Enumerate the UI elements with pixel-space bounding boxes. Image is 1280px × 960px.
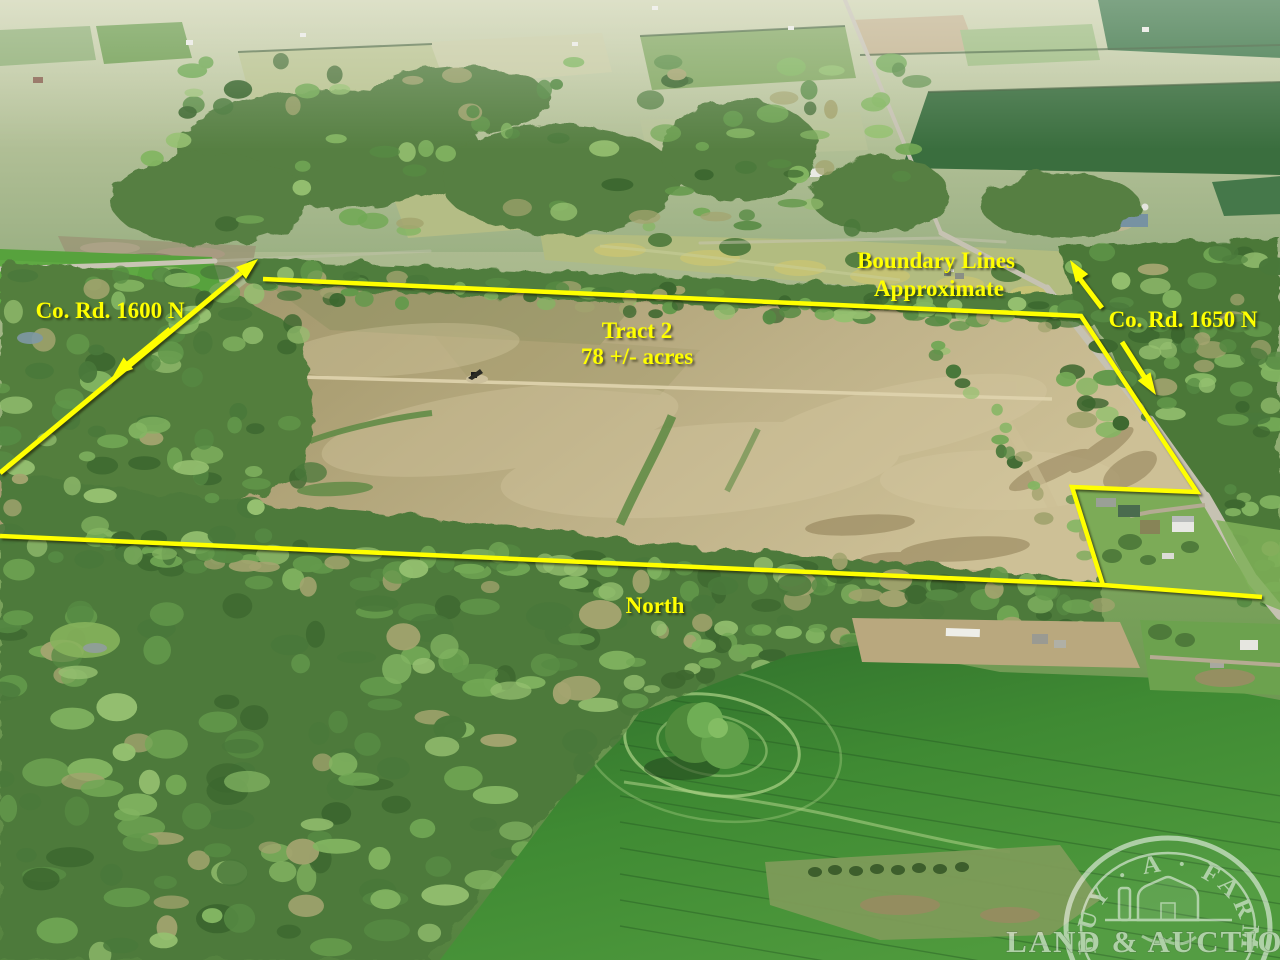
road-label-right: Co. Rd. 1650 N	[1109, 307, 1258, 332]
road-label-left: Co. Rd. 1600 N	[36, 298, 185, 323]
tract-label-line2: 78 +/- acres	[581, 344, 693, 369]
boundary-note-line1: Boundary Lines	[857, 248, 1015, 273]
white-house	[1172, 516, 1194, 532]
north-label: North	[626, 593, 685, 618]
atmospheric-haze	[0, 0, 1280, 150]
terrain	[0, 0, 1280, 960]
boundary-note-line2: Approximate	[874, 276, 1004, 301]
aerial-photo-canvas: Co. Rd. 1600 N Boundary Lines Approximat…	[0, 0, 1280, 960]
tract-label-line1: Tract 2	[602, 318, 672, 343]
watermark-company-text: LAND & AUCTION CO.	[1006, 924, 1280, 959]
aerial-photo: Co. Rd. 1600 N Boundary Lines Approximat…	[0, 0, 1280, 960]
